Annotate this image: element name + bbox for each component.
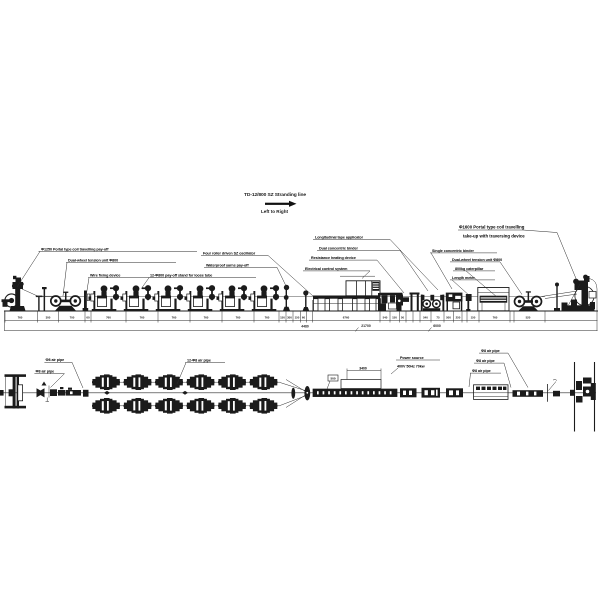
svg-text:700: 700 [70, 316, 75, 320]
svg-text:760: 760 [236, 316, 241, 320]
svg-text:300: 300 [46, 316, 51, 320]
svg-text:Single concentric binder: Single concentric binder [432, 249, 474, 253]
svg-text:300: 300 [287, 316, 292, 320]
svg-text:500: 500 [330, 377, 335, 381]
svg-text:Φ8 air pipe: Φ8 air pipe [472, 369, 491, 373]
svg-text:Dual-wheel tension unit Φ800: Dual-wheel tension unit Φ800 [452, 258, 502, 262]
svg-text:Φ8 air pipe: Φ8 air pipe [481, 349, 500, 353]
svg-text:4480: 4480 [301, 325, 309, 329]
svg-text:760: 760 [172, 316, 177, 320]
svg-text:760: 760 [140, 316, 145, 320]
svg-text:TD-12/800 SZ Stranding line: TD-12/800 SZ Stranding line [244, 192, 306, 198]
svg-text:Electrical control system: Electrical control system [305, 267, 348, 271]
svg-text:Φ8 air pipe: Φ8 air pipe [476, 359, 495, 363]
svg-text:400V 50Hz 70kw: 400V 50Hz 70kw [397, 365, 425, 369]
svg-text:75: 75 [436, 316, 440, 320]
svg-text:800kg caterpillar: 800kg caterpillar [455, 267, 484, 271]
svg-text:Length meter: Length meter [452, 276, 475, 280]
svg-text:Waterproof yarns pay-off: Waterproof yarns pay-off [206, 263, 249, 267]
svg-text:150: 150 [471, 316, 476, 320]
svg-text:540: 540 [383, 316, 388, 320]
svg-text:Resistance heating device: Resistance heating device [311, 256, 356, 260]
svg-text:760: 760 [493, 316, 498, 320]
svg-text:Left to Right: Left to Right [261, 209, 289, 214]
svg-text:760: 760 [204, 316, 209, 320]
svg-text:Φ8 air pipe: Φ8 air pipe [46, 358, 65, 362]
svg-text:12-Φ800 pay-off stand for loos: 12-Φ800 pay-off stand for loose tube [150, 274, 212, 278]
svg-text:6760: 6760 [343, 316, 350, 320]
svg-text:250: 250 [456, 316, 461, 320]
svg-text:540: 540 [423, 316, 428, 320]
svg-text:760: 760 [18, 316, 23, 320]
svg-text:Φ1600 Portal type coil travell: Φ1600 Portal type coil travelling [459, 225, 525, 230]
svg-text:Dual-wheel tension unit Φ800: Dual-wheel tension unit Φ800 [68, 258, 118, 262]
svg-text:Longitudinal tape applicator: Longitudinal tape applicator [315, 235, 364, 239]
svg-text:150: 150 [392, 316, 397, 320]
svg-text:760: 760 [106, 316, 111, 320]
svg-text:Four roller driven SZ oscillat: Four roller driven SZ oscillator [203, 251, 256, 255]
svg-text:Dual concentric binder: Dual concentric binder [319, 246, 358, 250]
svg-text:500: 500 [446, 316, 451, 320]
svg-text:50: 50 [401, 316, 405, 320]
svg-text:150: 150 [280, 316, 285, 320]
svg-text:6000: 6000 [433, 324, 441, 328]
svg-text:Power source: Power source [400, 356, 424, 360]
svg-text:take-up with traversing device: take-up with traversing device [463, 234, 525, 239]
svg-text:12-Φ8 air pipe: 12-Φ8 air pipe [187, 359, 211, 363]
svg-text:3400: 3400 [359, 366, 367, 370]
svg-text:60: 60 [302, 316, 306, 320]
svg-text:60: 60 [86, 316, 90, 320]
svg-text:Φ1250 Portal type coil travell: Φ1250 Portal type coil travelling pay-of… [41, 247, 109, 251]
svg-text:520: 520 [526, 316, 531, 320]
svg-text:Wire fixing device: Wire fixing device [90, 274, 120, 278]
svg-text:21700: 21700 [361, 324, 371, 328]
svg-text:760: 760 [265, 316, 270, 320]
svg-text:150: 150 [295, 316, 300, 320]
svg-text:Φ8 air pipe: Φ8 air pipe [36, 369, 55, 373]
